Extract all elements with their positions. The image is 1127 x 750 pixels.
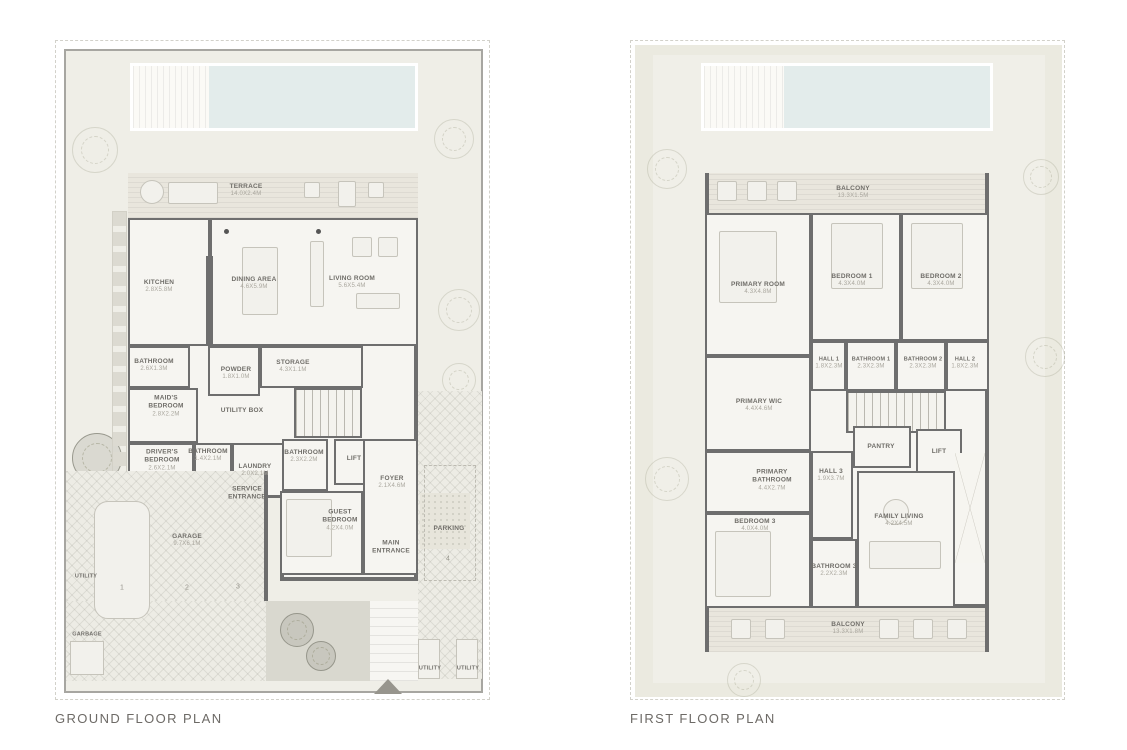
room-name: BATHROOM bbox=[188, 448, 227, 456]
entry-steps bbox=[370, 601, 418, 681]
kitchen-island-wall bbox=[206, 256, 213, 344]
room-dim: 2.8X2.2M bbox=[145, 412, 187, 420]
balcony-furniture bbox=[913, 619, 933, 639]
room-name: STORAGE bbox=[276, 359, 309, 367]
room-dim: 1.4X2.1M bbox=[188, 456, 227, 464]
room-name: PARKING bbox=[434, 525, 465, 533]
balcony-furniture bbox=[777, 181, 797, 201]
room-name: GARBAGE bbox=[72, 631, 102, 638]
room-name: SERVICE ENTRANCE bbox=[226, 486, 268, 503]
planted-court bbox=[266, 601, 370, 681]
room-label-parking: PARKING bbox=[434, 525, 465, 533]
room-name: BATHROOM bbox=[284, 449, 323, 457]
balcony-furniture bbox=[747, 181, 767, 201]
room-name: HALL 1 bbox=[815, 357, 842, 364]
room-dim: 4.3X1.1M bbox=[276, 367, 309, 375]
room-label-kitchen: KITCHEN 2.8X5.8M bbox=[144, 279, 174, 295]
room-label-garbage: GARBAGE bbox=[72, 631, 102, 638]
room-name: BATHROOM bbox=[134, 358, 173, 366]
room-dim: 1.9X3.7M bbox=[817, 476, 844, 484]
room-dim: 4.3X4.0M bbox=[920, 281, 961, 289]
room-dim: 4.0X4.0M bbox=[734, 526, 775, 534]
room-name: BATHROOM 2 bbox=[904, 357, 943, 364]
room-label-powder: POWDER 1.8X1.0M bbox=[221, 366, 251, 382]
room-label-primary-wic: PRIMARY WIC 4.4X4.6M bbox=[736, 398, 782, 414]
room-dim: 4.4X2.7M bbox=[751, 486, 793, 494]
room-name: BALCONY bbox=[831, 621, 865, 629]
room-dim: 1.8X1.0M bbox=[221, 374, 251, 382]
room-label-bathroom-1: BATHROOM 1 2.3X2.3M bbox=[852, 357, 891, 372]
room-label-bathroom-2: BATHROOM 2 2.3X2.3M bbox=[904, 357, 943, 372]
room-dim: 2.3X2.3M bbox=[904, 364, 943, 372]
staircase bbox=[294, 388, 362, 438]
room-label-hall-1: HALL 1 1.8X2.3M bbox=[815, 357, 842, 372]
room-label-drivers-bedroom: DRIVER'S BEDROOM 2.6X2.1M bbox=[141, 449, 183, 474]
room-label-utility-left: UTILITY bbox=[75, 573, 97, 580]
room-name: DRIVER'S BEDROOM bbox=[141, 449, 183, 466]
room-hall-3 bbox=[811, 451, 853, 539]
room-dim: 9.7X6.1M bbox=[172, 541, 202, 549]
room-label-main-entrance: MAIN ENTRANCE bbox=[370, 540, 412, 557]
tree-icon bbox=[645, 457, 689, 501]
room-name: PRIMARY WIC bbox=[736, 398, 782, 406]
balcony-furniture bbox=[731, 619, 751, 639]
room-name: POWDER bbox=[221, 366, 251, 374]
room-name: MAIN ENTRANCE bbox=[370, 540, 412, 557]
ground-floor-panel: TERRACE 14.0X2.4M KITCHEN 2.8X5.8M DININ… bbox=[55, 40, 490, 700]
room-dim: 4.6X5.9M bbox=[232, 284, 277, 292]
first-floor-panel: BALCONY 13.3X1.5M PRIMARY ROOM 4.3X4.8M … bbox=[630, 40, 1065, 700]
pool-water bbox=[784, 66, 990, 128]
room-dim: 2.3X2.2M bbox=[284, 457, 323, 465]
room-label-terrace: TERRACE 14.0X2.4M bbox=[230, 183, 263, 199]
room-label-hall-3: HALL 3 1.9X3.7M bbox=[817, 468, 844, 484]
room-name: UTILITY bbox=[419, 665, 441, 672]
ground-floor-caption: GROUND FLOOR PLAN bbox=[55, 711, 223, 726]
room-name: BEDROOM 3 bbox=[734, 518, 775, 526]
room-label-utility-b2: UTILITY bbox=[457, 665, 479, 672]
parking-spot-number: 2 bbox=[185, 585, 189, 592]
room-dim: 2.2X2.3M bbox=[811, 571, 856, 579]
room-dim: 2.0X2.1M bbox=[239, 471, 272, 479]
tree-icon bbox=[1025, 337, 1065, 377]
parking-spot-number: 1 bbox=[120, 585, 124, 592]
room-label-service-entrance: SERVICE ENTRANCE bbox=[226, 486, 268, 503]
tree-icon bbox=[72, 127, 118, 173]
pool-surround bbox=[130, 63, 418, 131]
room-dim: 14.0X2.4M bbox=[230, 191, 263, 199]
room-dim: 4.3X4.0M bbox=[831, 281, 872, 289]
room-name: UTILITY bbox=[75, 573, 97, 580]
room-family-living bbox=[857, 471, 955, 608]
room-label-bathroom-b: BATHROOM 1.4X2.1M bbox=[188, 448, 227, 464]
room-dim: 2.1X4.6M bbox=[378, 483, 405, 491]
lounge-chair bbox=[338, 181, 356, 207]
room-name: LAUNDRY bbox=[239, 463, 272, 471]
room-name: PRIMARY ROOM bbox=[731, 281, 785, 289]
tree-icon bbox=[434, 119, 474, 159]
room-name: LIFT bbox=[932, 448, 947, 456]
room-dim: 4.3X4.8M bbox=[731, 289, 785, 297]
parking-spot-number: 3 bbox=[236, 584, 240, 591]
armchair bbox=[352, 237, 372, 257]
room-label-maids-bedroom: MAID'S BEDROOM 2.8X2.2M bbox=[145, 395, 187, 420]
room-dim: 1.8X2.3M bbox=[815, 364, 842, 372]
room-name: MAID'S BEDROOM bbox=[145, 395, 187, 412]
room-label-lift: LIFT bbox=[347, 455, 362, 463]
sofa bbox=[869, 541, 941, 569]
armchair bbox=[378, 237, 398, 257]
room-label-balcony-bottom: BALCONY 13.3X1.8M bbox=[831, 621, 865, 637]
room-name: BEDROOM 2 bbox=[920, 273, 961, 281]
room-dim: 2.6X2.1M bbox=[141, 466, 183, 474]
room-dim: 4.4X4.6M bbox=[736, 406, 782, 414]
room-label-bedroom-2: BEDROOM 2 4.3X4.0M bbox=[920, 273, 961, 289]
sofa bbox=[356, 293, 400, 309]
room-name: GARAGE bbox=[172, 533, 202, 541]
parking-spot-number: 4 bbox=[446, 556, 450, 563]
bed bbox=[715, 531, 771, 597]
room-label-bathroom-a: BATHROOM 2.6X1.3M bbox=[134, 358, 173, 374]
room-dim: 4.2X4.0M bbox=[319, 526, 361, 534]
room-label-primary-room: PRIMARY ROOM 4.3X4.8M bbox=[731, 281, 785, 297]
tree-icon bbox=[647, 149, 687, 189]
room-label-primary-bathroom: PRIMARY BATHROOM 4.4X2.7M bbox=[751, 469, 793, 494]
outdoor-dining-table bbox=[168, 182, 218, 204]
room-name: HALL 2 bbox=[951, 357, 978, 364]
tree-icon bbox=[280, 613, 314, 647]
room-name: BATHROOM 1 bbox=[852, 357, 891, 364]
room-label-storage: STORAGE 4.3X1.1M bbox=[276, 359, 309, 375]
tree-icon bbox=[306, 641, 336, 671]
pool-water bbox=[209, 66, 415, 128]
tree-icon bbox=[727, 663, 761, 697]
room-name: UTILITY bbox=[457, 665, 479, 672]
room-dim: 2.8X5.8M bbox=[144, 287, 174, 295]
room-label-balcony-top: BALCONY 13.3X1.5M bbox=[836, 185, 870, 201]
room-name: GUEST BEDROOM bbox=[319, 509, 361, 526]
room-label-pantry: PANTRY bbox=[867, 443, 894, 451]
room-label-hall-2: HALL 2 1.8X2.3M bbox=[951, 357, 978, 372]
first-floor-caption: FIRST FLOOR PLAN bbox=[630, 711, 776, 726]
planter-strip bbox=[112, 211, 127, 499]
room-dim: 2.3X2.3M bbox=[852, 364, 891, 372]
room-name: LIVING ROOM bbox=[329, 275, 375, 283]
room-label-laundry: LAUNDRY 2.0X2.1M bbox=[239, 463, 272, 479]
balcony-furniture bbox=[947, 619, 967, 639]
room-label-family-living: FAMILY LIVING 4.2X4.5M bbox=[874, 513, 923, 529]
room-label-bedroom-1: BEDROOM 1 4.3X4.0M bbox=[831, 273, 872, 289]
room-label-utility-box: UTILITY BOX bbox=[221, 407, 264, 415]
pool-deck bbox=[133, 66, 209, 128]
room-name: FAMILY LIVING bbox=[874, 513, 923, 521]
car-icon bbox=[94, 501, 150, 619]
room-label-bathroom-3: BATHROOM 3 2.2X2.3M bbox=[811, 563, 856, 579]
utility-box-1 bbox=[418, 639, 440, 679]
room-name: KITCHEN bbox=[144, 279, 174, 287]
room-label-bathroom-c: BATHROOM 2.3X2.2M bbox=[284, 449, 323, 465]
room-dim: 5.6X5.4M bbox=[329, 283, 375, 291]
room-name: TERRACE bbox=[230, 183, 263, 191]
balcony-furniture bbox=[879, 619, 899, 639]
open-deck bbox=[955, 453, 985, 563]
room-name: FOYER bbox=[378, 475, 405, 483]
room-name: HALL 3 bbox=[817, 468, 844, 476]
room-label-living: LIVING ROOM 5.6X5.4M bbox=[329, 275, 375, 291]
room-label-lift: LIFT bbox=[932, 448, 947, 456]
room-name: PANTRY bbox=[867, 443, 894, 451]
hanging-chair bbox=[140, 180, 164, 204]
column-dot bbox=[316, 229, 321, 234]
room-label-utility-b1: UTILITY bbox=[419, 665, 441, 672]
lounge-chair bbox=[304, 182, 320, 198]
pool-surround bbox=[701, 63, 993, 131]
balcony-furniture bbox=[765, 619, 785, 639]
room-name: PRIMARY BATHROOM bbox=[751, 469, 793, 486]
column-dot bbox=[224, 229, 229, 234]
garbage-box bbox=[70, 641, 104, 675]
tree-icon bbox=[1023, 159, 1059, 195]
lounge-chair bbox=[368, 182, 384, 198]
utility-box-2 bbox=[456, 639, 478, 679]
room-dim: 4.2X4.5M bbox=[874, 521, 923, 529]
room-name: BEDROOM 1 bbox=[831, 273, 872, 281]
room-name: UTILITY BOX bbox=[221, 407, 264, 415]
page-canvas: TERRACE 14.0X2.4M KITCHEN 2.8X5.8M DININ… bbox=[0, 0, 1127, 750]
room-dim: 13.3X1.5M bbox=[836, 193, 870, 201]
room-name: LIFT bbox=[347, 455, 362, 463]
room-name: BATHROOM 3 bbox=[811, 563, 856, 571]
room-label-bedroom-3: BEDROOM 3 4.0X4.0M bbox=[734, 518, 775, 534]
room-dim: 1.8X2.3M bbox=[951, 364, 978, 372]
room-name: DINING AREA bbox=[232, 276, 277, 284]
room-label-foyer: FOYER 2.1X4.6M bbox=[378, 475, 405, 491]
tree-icon bbox=[438, 289, 480, 331]
pool-deck bbox=[704, 66, 784, 128]
parking-spot-outline bbox=[424, 465, 476, 581]
room-dim: 13.3X1.8M bbox=[831, 629, 865, 637]
sofa bbox=[310, 241, 324, 307]
room-label-guest-bedroom: GUEST BEDROOM 4.2X4.0M bbox=[319, 509, 361, 534]
room-name: BALCONY bbox=[836, 185, 870, 193]
room-label-garage: GARAGE 9.7X6.1M bbox=[172, 533, 202, 549]
balcony-furniture bbox=[717, 181, 737, 201]
entrance-arrow-icon bbox=[374, 679, 402, 694]
room-label-dining: DINING AREA 4.6X5.9M bbox=[232, 276, 277, 292]
room-dim: 2.6X1.3M bbox=[134, 366, 173, 374]
